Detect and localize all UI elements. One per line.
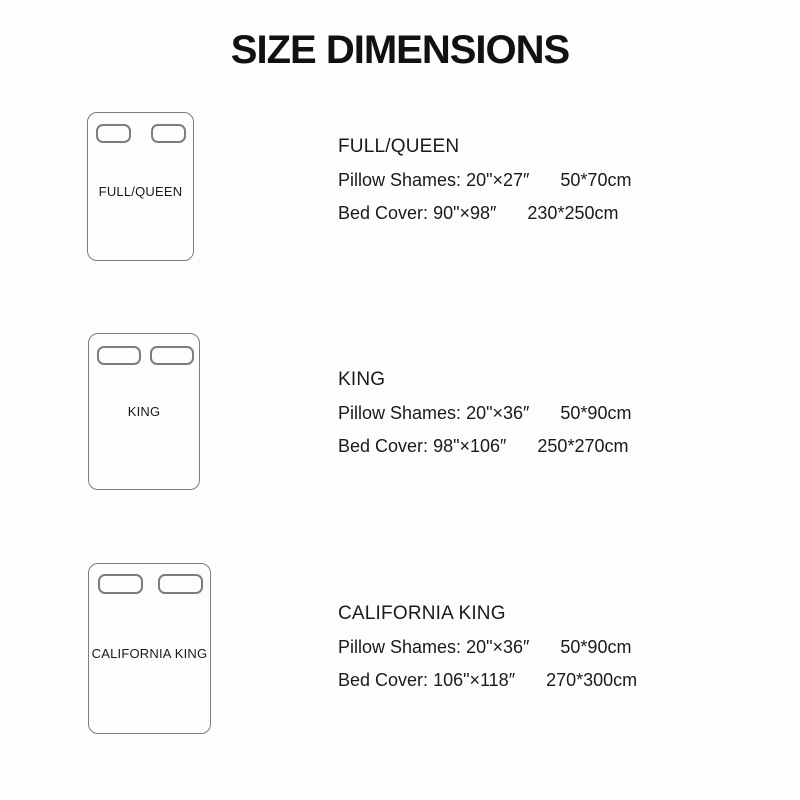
pillow-dimensions-line: Pillow Shames: 20"×36″ 50*90cm [338, 636, 637, 658]
size-info-king: KING Pillow Shames: 20"×36″ 50*90cm Bed … [338, 369, 631, 468]
cover-dimensions-line: Bed Cover: 98"×106″ 250*270cm [338, 435, 631, 457]
pillow-icon [158, 574, 203, 594]
pillow-dim-inches: 20"×36″ [466, 637, 529, 657]
cover-dim-inches: 90"×98″ [433, 203, 496, 223]
cover-dim-inches: 106"×118″ [433, 670, 515, 690]
size-info-california-king: CALIFORNIA KING Pillow Shames: 20"×36″ 5… [338, 603, 637, 702]
page-title: SIZE DIMENSIONS [0, 28, 800, 72]
pillow-dim-cm: 50*90cm [560, 637, 631, 657]
pillow-dim-label: Pillow Shames: [338, 403, 461, 423]
bed-diagram-full-queen: FULL/QUEEN [87, 112, 194, 261]
pillow-dim-label: Pillow Shames: [338, 637, 461, 657]
pillow-icon [151, 124, 186, 143]
size-dimensions-infographic: SIZE DIMENSIONS FULL/QUEEN FULL/QUEEN Pi… [0, 0, 800, 800]
size-info-full-queen: FULL/QUEEN Pillow Shames: 20"×27″ 50*70c… [338, 136, 631, 235]
pillow-dim-inches: 20"×36″ [466, 403, 529, 423]
cover-dim-cm: 270*300cm [546, 670, 637, 690]
pillow-icon [97, 346, 141, 365]
cover-dim-label: Bed Cover: [338, 670, 428, 690]
size-name: FULL/QUEEN [338, 136, 631, 158]
bed-diagram-label: FULL/QUEEN [99, 184, 183, 199]
bed-diagram-king: KING [88, 333, 200, 490]
size-name: KING [338, 369, 631, 391]
pillow-dimensions-line: Pillow Shames: 20"×36″ 50*90cm [338, 402, 631, 424]
pillow-icon [96, 124, 131, 143]
pillow-icon [98, 574, 143, 594]
bed-diagram-label: KING [128, 404, 161, 419]
cover-dimensions-line: Bed Cover: 106"×118″ 270*300cm [338, 669, 637, 691]
bed-diagram-label: CALIFORNIA KING [92, 646, 208, 661]
cover-dimensions-line: Bed Cover: 90"×98″ 230*250cm [338, 202, 631, 224]
pillow-dimensions-line: Pillow Shames: 20"×27″ 50*70cm [338, 169, 631, 191]
cover-dim-cm: 250*270cm [537, 436, 628, 456]
pillow-icon [150, 346, 194, 365]
bed-diagram-california-king: CALIFORNIA KING [88, 563, 211, 734]
cover-dim-cm: 230*250cm [527, 203, 618, 223]
size-name: CALIFORNIA KING [338, 603, 637, 625]
cover-dim-label: Bed Cover: [338, 203, 428, 223]
pillow-dim-inches: 20"×27″ [466, 170, 529, 190]
cover-dim-label: Bed Cover: [338, 436, 428, 456]
cover-dim-inches: 98"×106″ [433, 436, 506, 456]
pillow-dim-cm: 50*70cm [560, 170, 631, 190]
pillow-dim-label: Pillow Shames: [338, 170, 461, 190]
pillow-dim-cm: 50*90cm [560, 403, 631, 423]
